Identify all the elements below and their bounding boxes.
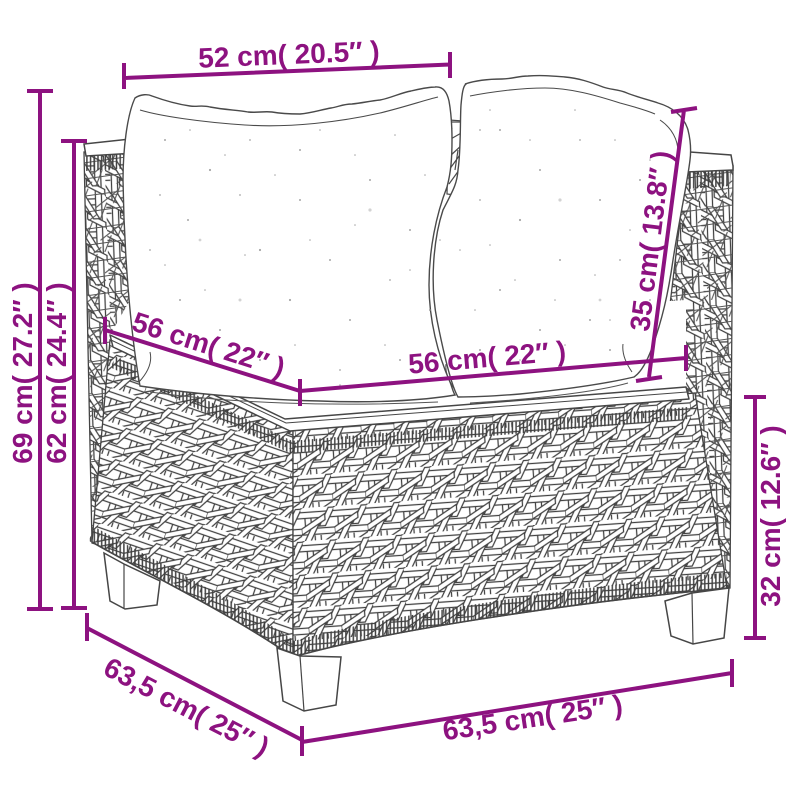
svg-text:69 cm( 27.2″ ): 69 cm( 27.2″ ) (7, 282, 38, 464)
svg-text:62 cm( 24.4″ ): 62 cm( 24.4″ ) (41, 282, 72, 464)
svg-text:32 cm( 12.6″ ): 32 cm( 12.6″ ) (755, 425, 786, 607)
